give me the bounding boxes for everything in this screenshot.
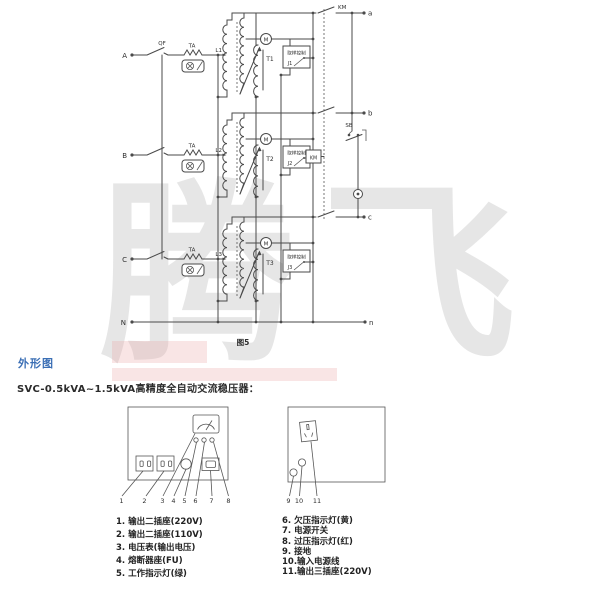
- neutral-out-label: n: [369, 319, 373, 327]
- controller-title: 取样控制: [287, 254, 306, 261]
- voltmeter-icon: [193, 415, 219, 433]
- phase-a-motor-label: M: [264, 38, 269, 44]
- phase-c-arrester-lamp-icon: [182, 264, 204, 276]
- controller-title: 取样控制: [287, 50, 306, 57]
- phase-a-arrester-lamp-icon: [182, 60, 204, 72]
- phase-c-ct-label: TA: [188, 248, 196, 254]
- power-cord-entry-icon: [298, 459, 305, 466]
- phase-a-breaker-label: QF: [158, 41, 166, 47]
- legend-item: 3. 电压表(输出电压): [116, 542, 203, 555]
- contactor-label: KM: [338, 5, 347, 11]
- callout-8: 8: [226, 497, 230, 505]
- rear-panel-drawing: 9 10 11: [286, 407, 385, 505]
- callout-2: 2: [142, 497, 146, 505]
- power-switch-icon: [202, 458, 219, 471]
- phase-c-sampling-controller: 取样控制 J3: [283, 250, 314, 272]
- phase-a-sampling-controller: 取样控制 J1: [283, 46, 314, 68]
- front-callout-leaders: [122, 434, 229, 497]
- pushbutton-icon: [346, 130, 366, 141]
- undervoltage-lamp-icon: [202, 438, 206, 442]
- legend-item: 1. 输出二插座(220V): [116, 516, 203, 529]
- ground-terminal-icon: [290, 469, 297, 476]
- section-heading: 外形图: [18, 355, 54, 371]
- phase-c-motor-label: M: [264, 242, 269, 248]
- legend-item: 6. 欠压指示灯(黄): [282, 516, 372, 526]
- output-c-label: c: [368, 214, 372, 222]
- callout-1: 1: [119, 497, 123, 505]
- callout-6: 6: [193, 497, 197, 505]
- legend-item: 2. 输出二插座(110V): [116, 529, 203, 542]
- phase-c-block: C TA L3 M: [122, 211, 372, 302]
- callout-3: 3: [160, 497, 164, 505]
- callout-7: 7: [209, 497, 213, 505]
- callout-5: 5: [182, 497, 186, 505]
- callout-9: 9: [286, 497, 290, 505]
- callout-11: 11: [313, 497, 321, 505]
- callout-10: 10: [295, 497, 303, 505]
- phase-a-block: A QF TA L1 M: [122, 7, 372, 98]
- phase-c-winding-label: L3: [215, 252, 222, 258]
- phase-b-ct-label: TA: [188, 144, 196, 150]
- output-socket-220v-icon: [136, 456, 153, 471]
- controller-title: 取样控制: [287, 150, 306, 157]
- three-pin-socket-icon: [300, 421, 318, 442]
- legend-item: 11.输出三插座(220V): [282, 567, 372, 577]
- phase-a-relay-label: J1: [287, 61, 293, 67]
- legend-item: 9. 接地: [282, 547, 372, 557]
- legend-item: 7. 电源开关: [282, 526, 372, 536]
- phase-b-input-label: B: [122, 152, 127, 160]
- figure-caption: 图5: [237, 338, 250, 347]
- callout-4: 4: [171, 497, 175, 505]
- phase-b-block: B TA L2 M: [122, 107, 373, 198]
- indicator-lamp-icon: [354, 190, 363, 199]
- legend-right-column: 6. 欠压指示灯(黄) 7. 电源开关 8. 过压指示灯(红) 9. 接地 10…: [282, 516, 372, 578]
- contactor-coil-label: KM: [310, 156, 317, 162]
- phase-c-relay-label: J3: [287, 265, 293, 271]
- overvoltage-lamp-icon: [210, 438, 214, 442]
- legend-left-column: 1. 输出二插座(220V) 2. 输出二插座(110V) 3. 电压表(输出电…: [116, 516, 203, 581]
- work-lamp-icon: [194, 438, 198, 442]
- start-button-label: SB: [345, 123, 352, 129]
- phase-a-ct-label: TA: [188, 44, 196, 50]
- front-panel-drawing: 1 2 3 4 5 6 7 8: [119, 407, 230, 505]
- phase-a-winding-label: L1: [215, 48, 222, 54]
- legend-item: 4. 熔断器座(FU): [116, 555, 203, 568]
- phase-b-transformer-label: T2: [265, 156, 274, 163]
- output-a-label: a: [368, 10, 372, 18]
- legend-item: 8. 过压指示灯(红): [282, 537, 372, 547]
- legend-item: 10.输入电源线: [282, 557, 372, 567]
- phase-c-transformer-label: T3: [265, 260, 274, 267]
- phase-b-arrester-lamp-icon: [182, 160, 204, 172]
- phase-b-winding-label: L2: [215, 148, 222, 154]
- neutral-in-label: N: [121, 319, 126, 327]
- phase-b-relay-label: J2: [287, 161, 293, 167]
- output-socket-110v-icon: [157, 456, 174, 471]
- fuse-holder-icon: [181, 459, 191, 469]
- output-b-label: b: [368, 110, 373, 118]
- phase-b-motor-label: M: [264, 138, 269, 144]
- phase-c-input-label: C: [122, 256, 127, 264]
- product-subtitle: SVC-0.5kVA~1.5kVA高精度全自动交流稳压器：: [17, 380, 259, 395]
- phase-a-transformer-label: T1: [265, 56, 274, 63]
- circuit-and-panel-diagram: A QF TA L1 M: [0, 0, 600, 600]
- phase-a-input-label: A: [122, 52, 127, 60]
- legend-item: 5. 工作指示灯(绿): [116, 568, 203, 581]
- neutral-line: N n: [121, 319, 374, 327]
